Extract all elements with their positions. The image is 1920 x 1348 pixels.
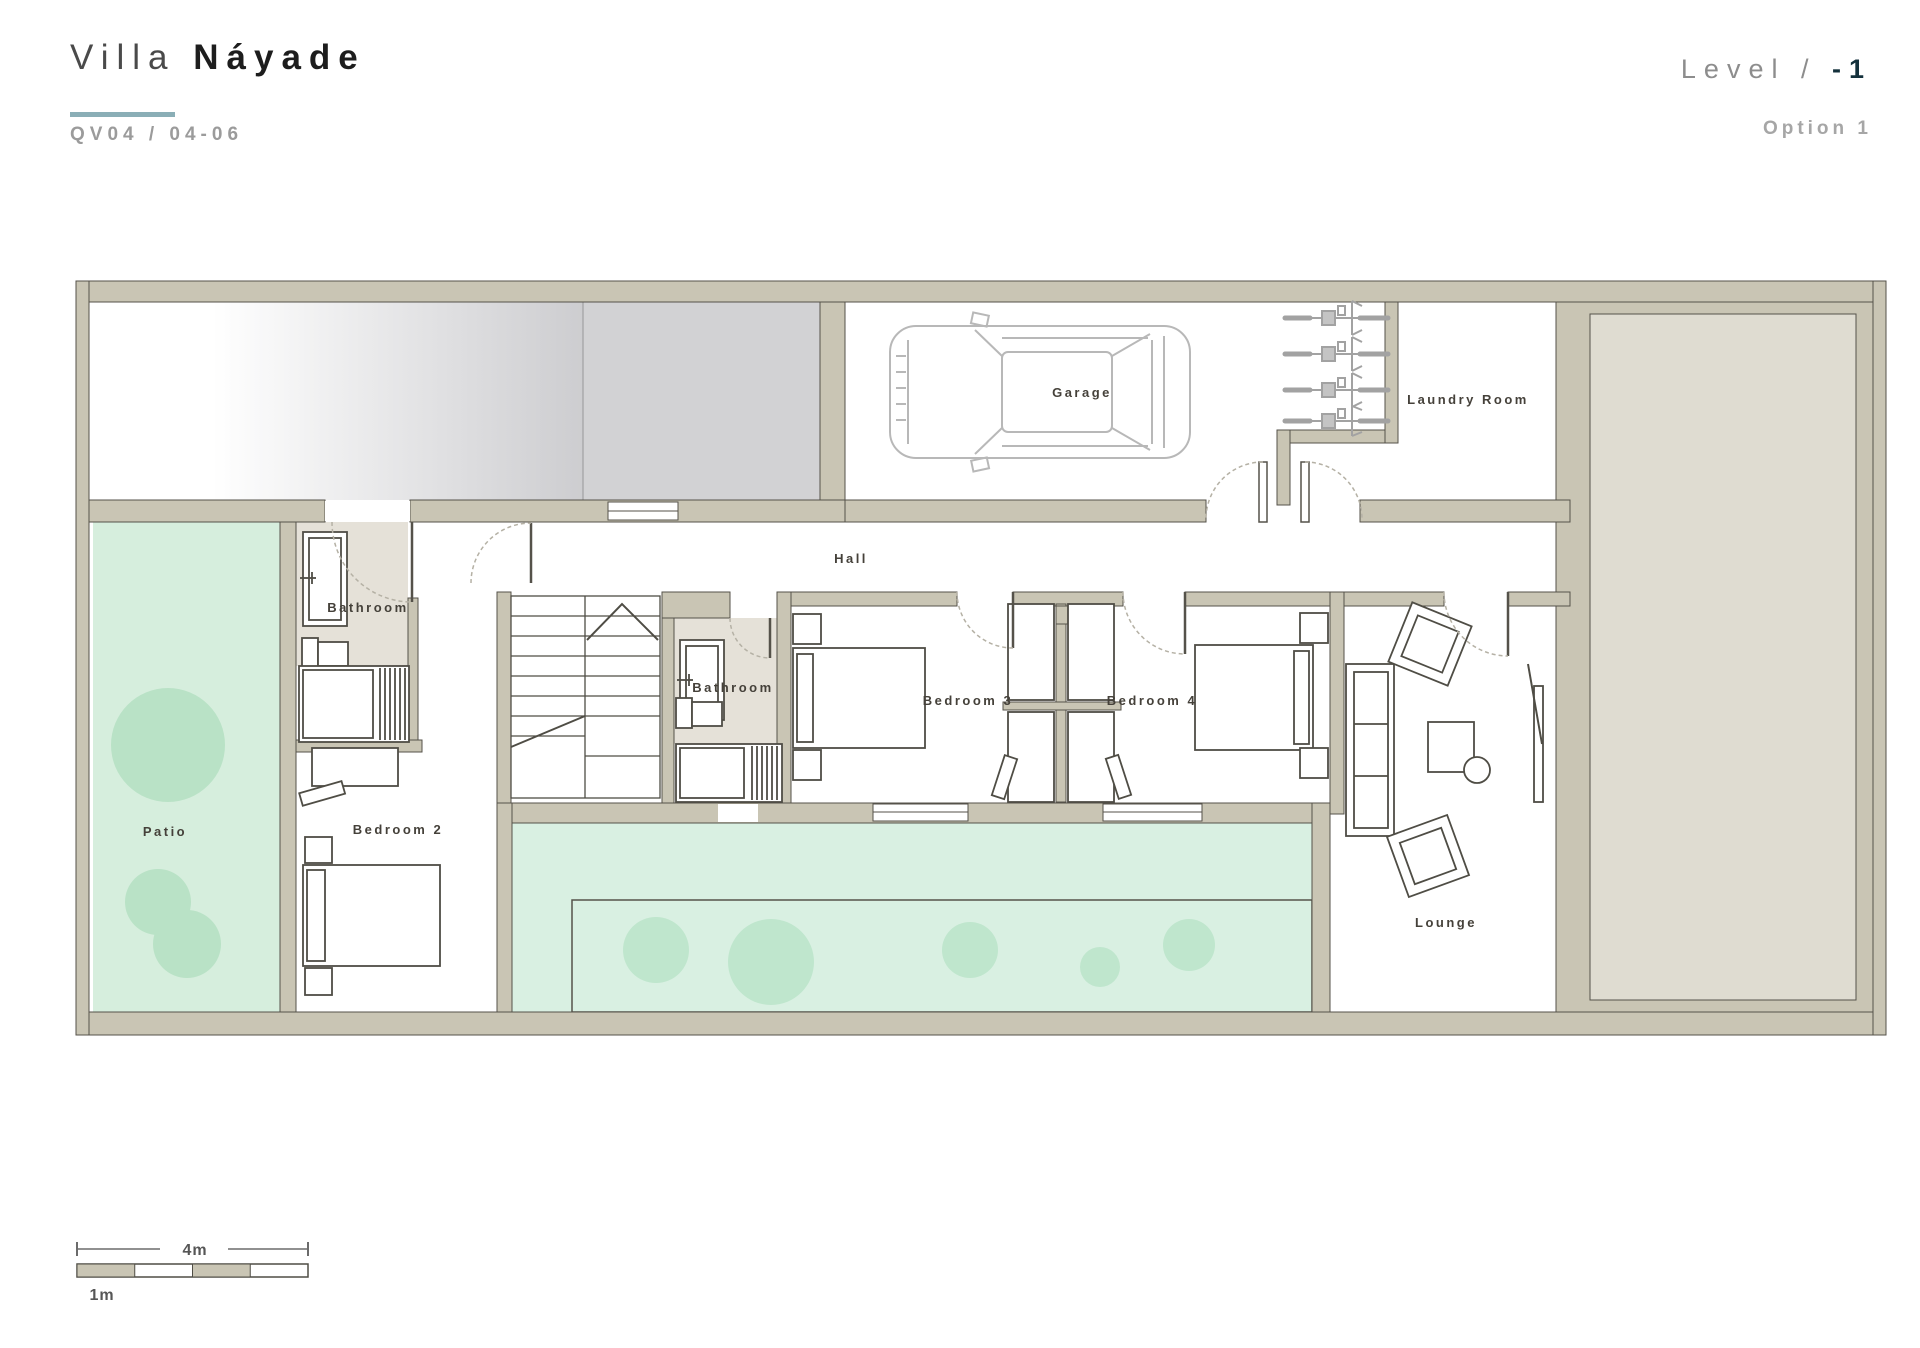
- scale-total-label: 4m: [182, 1242, 207, 1259]
- room-label-bedroom-3: Bedroom 3: [923, 693, 1013, 708]
- tree: [623, 917, 689, 983]
- nightstand: [793, 614, 821, 644]
- staircase: [511, 596, 660, 798]
- tree: [942, 922, 998, 978]
- toilet: [302, 638, 318, 668]
- opening: [325, 501, 410, 521]
- bed-headboard: [797, 654, 813, 742]
- room-label-hall: Hall: [834, 551, 868, 566]
- room-label-garage: Garage: [1052, 385, 1112, 400]
- nightstand: [1300, 613, 1328, 643]
- tree: [111, 688, 225, 802]
- terrain-band: [1556, 302, 1873, 1012]
- toilet: [676, 698, 692, 728]
- scale-bar: 4m 1m: [77, 1242, 308, 1304]
- patio-garden: [93, 522, 280, 1012]
- floor-plan-sheet: Villa Náyade QV04 / 04-06 Level / -1 Opt…: [0, 0, 1920, 1348]
- tree: [1080, 947, 1120, 987]
- floor-plan: Garage Laundry Room Hall Bathroom Bathro…: [0, 0, 1920, 1348]
- nightstand: [793, 750, 821, 780]
- nightstand: [305, 968, 332, 995]
- desk: [1068, 712, 1114, 802]
- room-label-laundry: Laundry Room: [1407, 392, 1529, 407]
- tree: [1163, 919, 1215, 971]
- room-label-bedroom-4: Bedroom 4: [1107, 693, 1197, 708]
- room-label-bathroom-2: Bathroom: [692, 680, 773, 695]
- driveway-ramp: [89, 302, 820, 500]
- room-label-bedroom-2: Bedroom 2: [353, 822, 443, 837]
- bed-headboard: [1294, 651, 1309, 744]
- desk: [1068, 604, 1114, 700]
- nightstand: [305, 837, 332, 863]
- room-label-bathroom-1: Bathroom: [327, 600, 408, 615]
- door-leaf: [1259, 462, 1267, 522]
- room-label-patio: Patio: [143, 824, 187, 839]
- desk: [1008, 604, 1054, 700]
- room-label-lounge: Lounge: [1415, 915, 1477, 930]
- nightstand: [1300, 748, 1328, 778]
- tree: [153, 910, 221, 978]
- bed-headboard: [307, 870, 325, 961]
- desk: [312, 748, 398, 786]
- desk: [1008, 712, 1054, 802]
- pool-court-garden: [512, 823, 1312, 1012]
- opening: [718, 804, 758, 822]
- lamp: [1464, 757, 1490, 783]
- door-leaf: [1301, 462, 1309, 522]
- tree: [728, 919, 814, 1005]
- scale-unit-label: 1m: [89, 1287, 114, 1304]
